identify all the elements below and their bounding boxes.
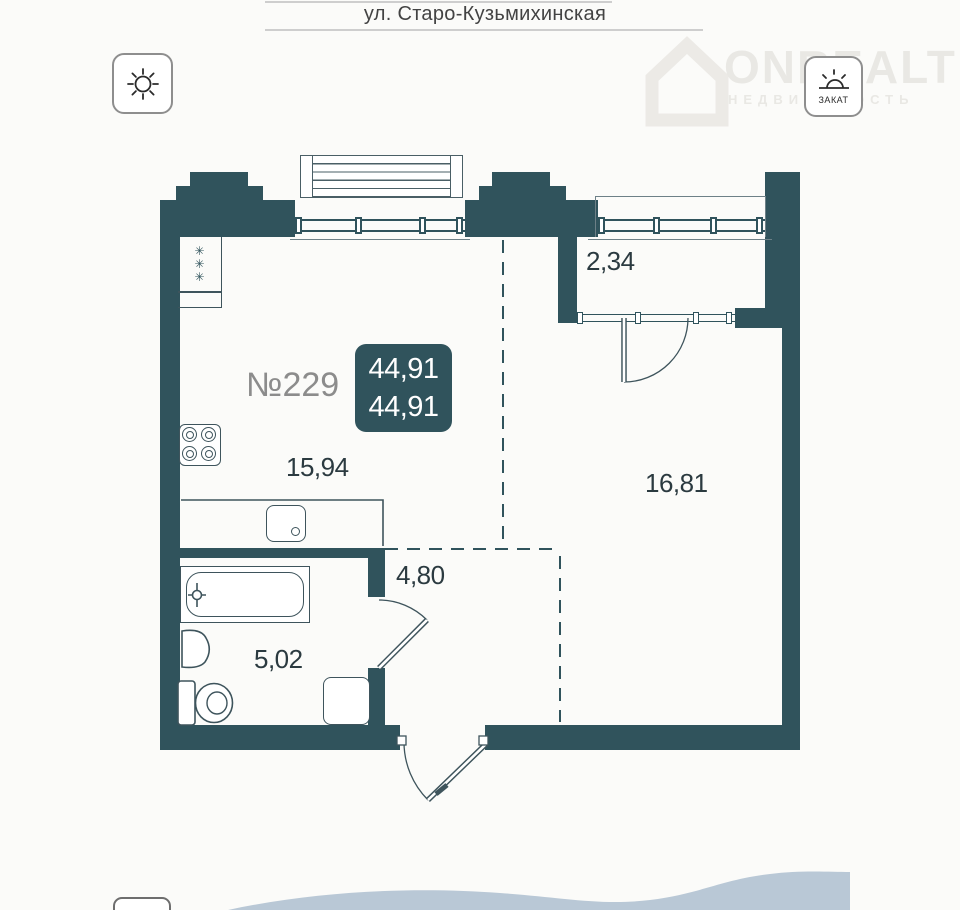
site-wave — [0, 0, 960, 910]
clipped-bottom-badge — [113, 897, 171, 910]
floorplan-page: ONREALT НЕДВИЖИМОСТЬ ул. Старо-Кузьмихин… — [0, 0, 960, 910]
